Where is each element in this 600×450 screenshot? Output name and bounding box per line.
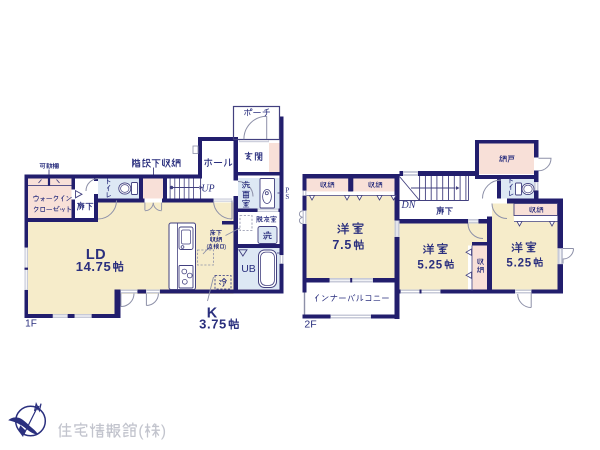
svg-text:UB: UB [241, 263, 256, 275]
svg-text:UP: UP [201, 184, 214, 195]
svg-text:3.75: 3.75 [199, 317, 227, 332]
svg-text:): ) [224, 243, 226, 250]
svg-text:): ) [161, 423, 166, 440]
svg-text:DN: DN [401, 200, 417, 211]
svg-text:7.5: 7.5 [332, 238, 352, 252]
svg-text:5.25: 5.25 [417, 259, 443, 271]
svg-text:5.25: 5.25 [506, 257, 532, 269]
svg-text:(: ( [138, 423, 144, 440]
svg-text:1F: 1F [25, 319, 37, 330]
svg-text:14.75: 14.75 [76, 259, 112, 274]
svg-text:2F: 2F [304, 319, 316, 331]
svg-text:S: S [285, 193, 289, 201]
